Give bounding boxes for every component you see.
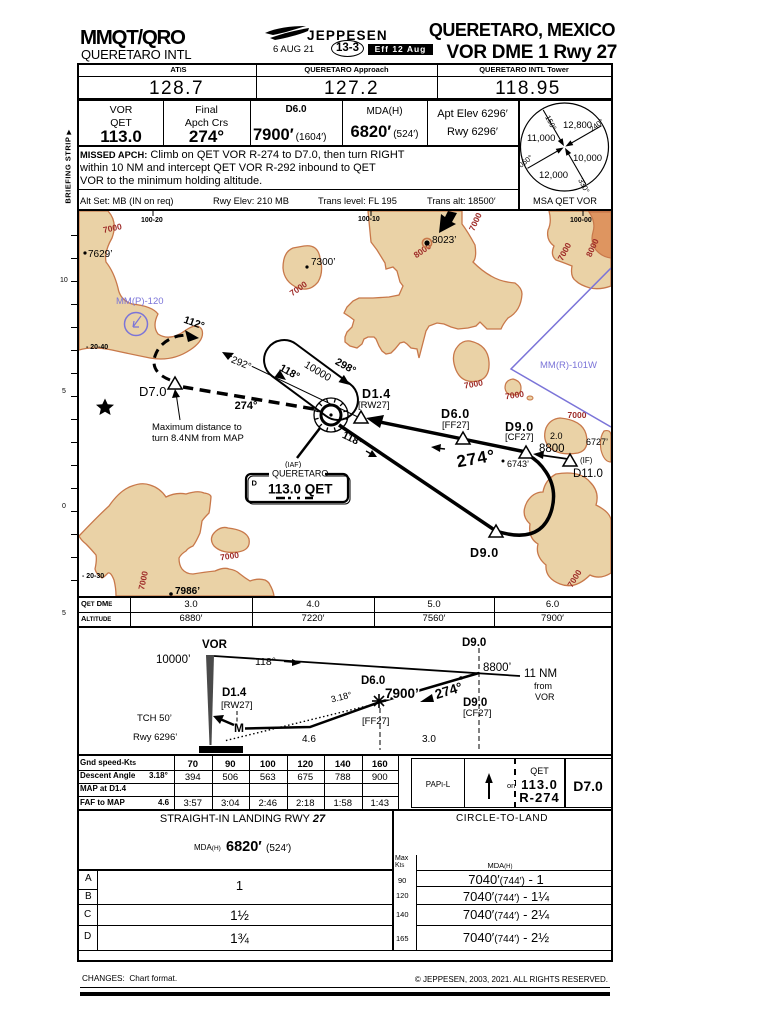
svg-text:6727’: 6727’: [586, 437, 608, 447]
svg-text:10,000: 10,000: [573, 153, 602, 164]
svg-text:D: D: [252, 479, 258, 488]
svg-text:330°: 330°: [576, 177, 591, 195]
svg-text:VOR: VOR: [535, 692, 555, 702]
svg-text:- 20-40: - 20-40: [86, 344, 108, 351]
svg-text:118°: 118°: [255, 656, 276, 668]
svg-text:3.18°: 3.18°: [330, 690, 353, 705]
svg-text:274°: 274°: [433, 679, 464, 702]
svg-text:D9.0: D9.0: [462, 637, 486, 649]
svg-text:[RW27]: [RW27]: [358, 400, 390, 411]
svg-text:3.0: 3.0: [422, 734, 436, 745]
svg-text:[FF27]: [FF27]: [362, 716, 389, 727]
svg-text:D11.0: D11.0: [573, 468, 603, 480]
svg-text:7000: 7000: [467, 211, 484, 232]
svg-text:10000’: 10000’: [156, 654, 191, 666]
svg-text:10000: 10000: [302, 359, 333, 384]
svg-text:[CF27]: [CF27]: [505, 432, 534, 443]
svg-text:100-00: 100-00: [570, 217, 592, 224]
svg-text:7300’: 7300’: [311, 257, 335, 268]
svg-text:7000: 7000: [505, 389, 525, 402]
svg-text:8800’: 8800’: [483, 662, 511, 674]
svg-text:turn 8.4NM from MAP: turn 8.4NM from MAP: [152, 433, 244, 444]
svg-text:11,000: 11,000: [527, 133, 555, 144]
svg-text:from: from: [534, 681, 552, 691]
svg-text:7000: 7000: [463, 377, 484, 390]
svg-text:7629’: 7629’: [88, 249, 112, 260]
svg-text:150°: 150°: [543, 114, 558, 132]
svg-text:Maximum distance to: Maximum distance to: [152, 422, 242, 433]
svg-text:[RW27]: [RW27]: [221, 700, 253, 711]
svg-text:8023’: 8023’: [432, 235, 456, 246]
svg-text:VOR: VOR: [202, 639, 228, 651]
svg-text:292°: 292°: [229, 355, 252, 373]
svg-text:118°: 118°: [277, 362, 301, 383]
svg-text:12,800: 12,800: [563, 120, 592, 131]
svg-text:Rwy 6296’: Rwy 6296’: [133, 732, 177, 743]
svg-text:[CF27]: [CF27]: [463, 708, 492, 719]
svg-text:QUERETARO: QUERETARO: [272, 469, 328, 479]
svg-text:MM(R)-101W: MM(R)-101W: [540, 360, 597, 371]
svg-text:M: M: [234, 721, 244, 735]
svg-text:D7.0: D7.0: [139, 384, 166, 399]
svg-text:D6.0: D6.0: [441, 407, 470, 421]
svg-text:D9.0: D9.0: [470, 546, 499, 560]
svg-text:7900’: 7900’: [385, 686, 419, 701]
svg-text:TCH 50’: TCH 50’: [137, 713, 172, 724]
svg-text:12,000: 12,000: [539, 170, 568, 181]
svg-text:7986’: 7986’: [175, 586, 200, 596]
svg-text:- 20-30: - 20-30: [82, 573, 104, 580]
svg-text:[FF27]: [FF27]: [442, 420, 469, 431]
svg-text:274°: 274°: [235, 400, 258, 412]
svg-text:11 NM: 11 NM: [524, 668, 557, 680]
svg-text:D6.0: D6.0: [361, 675, 385, 687]
svg-text:4.6: 4.6: [302, 734, 316, 745]
svg-text:7000: 7000: [220, 550, 240, 563]
svg-text:118°: 118°: [340, 429, 364, 449]
svg-text:D1.4: D1.4: [362, 387, 391, 401]
svg-text:D1.4: D1.4: [222, 687, 247, 699]
svg-text:100-10: 100-10: [358, 216, 380, 223]
svg-text:100-20: 100-20: [141, 217, 163, 224]
svg-text:6743’: 6743’: [507, 459, 529, 469]
svg-text:113.0 QET: 113.0 QET: [268, 482, 333, 497]
svg-text:2.0: 2.0: [550, 431, 563, 441]
svg-text:274°: 274°: [455, 446, 497, 472]
svg-text:MM(P)-120: MM(P)-120: [116, 296, 164, 307]
svg-text:(IF): (IF): [580, 456, 593, 465]
